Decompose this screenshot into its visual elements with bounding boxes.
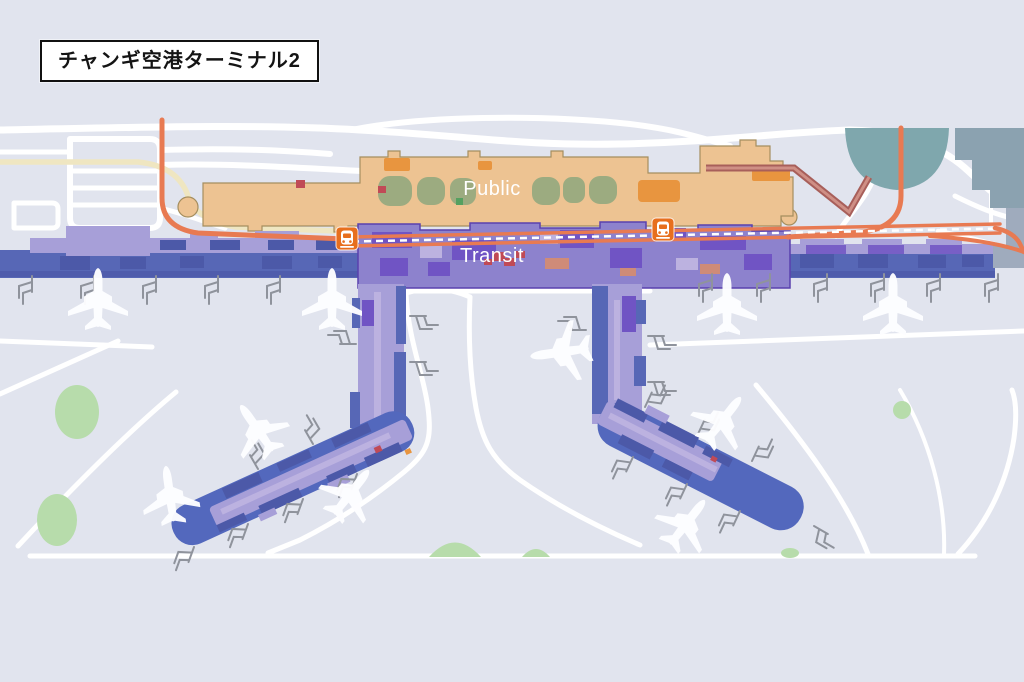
grass-patch bbox=[893, 401, 911, 419]
jet-bridge-icon bbox=[410, 316, 438, 329]
tree-canopy-icon bbox=[845, 128, 949, 190]
jet-bridge-icon bbox=[609, 452, 633, 483]
airport-terminal-map: Public Transit チャンギ空港ターミナル2 bbox=[0, 0, 1024, 682]
jet-bridge-icon bbox=[410, 362, 438, 375]
jet-bridges bbox=[19, 274, 998, 573]
pier-left-diagonal bbox=[165, 405, 423, 557]
building-detail bbox=[456, 198, 463, 205]
jet-bridge-icon bbox=[19, 276, 32, 304]
airplane-icon bbox=[217, 389, 297, 470]
west-annex-block bbox=[66, 226, 150, 256]
train-station-icon bbox=[652, 218, 674, 241]
jet-bridge-icon bbox=[267, 276, 280, 304]
map-canvas: Public Transit bbox=[0, 0, 1024, 682]
building-accent bbox=[478, 161, 492, 170]
jet-bridge-icon bbox=[143, 276, 156, 304]
airplane-icon bbox=[863, 273, 923, 335]
grass-mound bbox=[522, 549, 550, 557]
public-area-label: Public bbox=[463, 178, 520, 200]
transit-area-label: Transit bbox=[460, 245, 524, 267]
grass-patch bbox=[37, 494, 77, 546]
jet-bridge-icon bbox=[927, 274, 940, 302]
building-detail bbox=[378, 186, 386, 193]
pier-right-diagonal bbox=[590, 388, 815, 538]
jet-bridge-icon bbox=[299, 413, 324, 444]
building-round-annex bbox=[178, 197, 198, 217]
grass-mound bbox=[429, 543, 481, 558]
jet-bridge-icon bbox=[752, 436, 776, 467]
pier-left-vertical bbox=[350, 284, 406, 430]
building-accent bbox=[638, 180, 680, 202]
grass-patch bbox=[55, 385, 99, 439]
jet-bridge-icon bbox=[205, 276, 218, 304]
jet-bridge-icon bbox=[985, 274, 998, 302]
building-accent bbox=[384, 158, 410, 171]
grass-patch bbox=[781, 548, 799, 558]
jet-bridge-icon bbox=[328, 331, 356, 344]
jet-bridge-icon bbox=[814, 274, 827, 302]
gate-boxes-right bbox=[806, 245, 962, 254]
building-detail bbox=[296, 180, 305, 188]
jet-bridge-icon bbox=[808, 526, 839, 551]
airplane-icon bbox=[526, 318, 596, 386]
jet-bridge-icon bbox=[871, 274, 884, 302]
train-station-icon bbox=[336, 227, 358, 250]
map-title: チャンギ空港ターミナル2 bbox=[40, 40, 319, 82]
